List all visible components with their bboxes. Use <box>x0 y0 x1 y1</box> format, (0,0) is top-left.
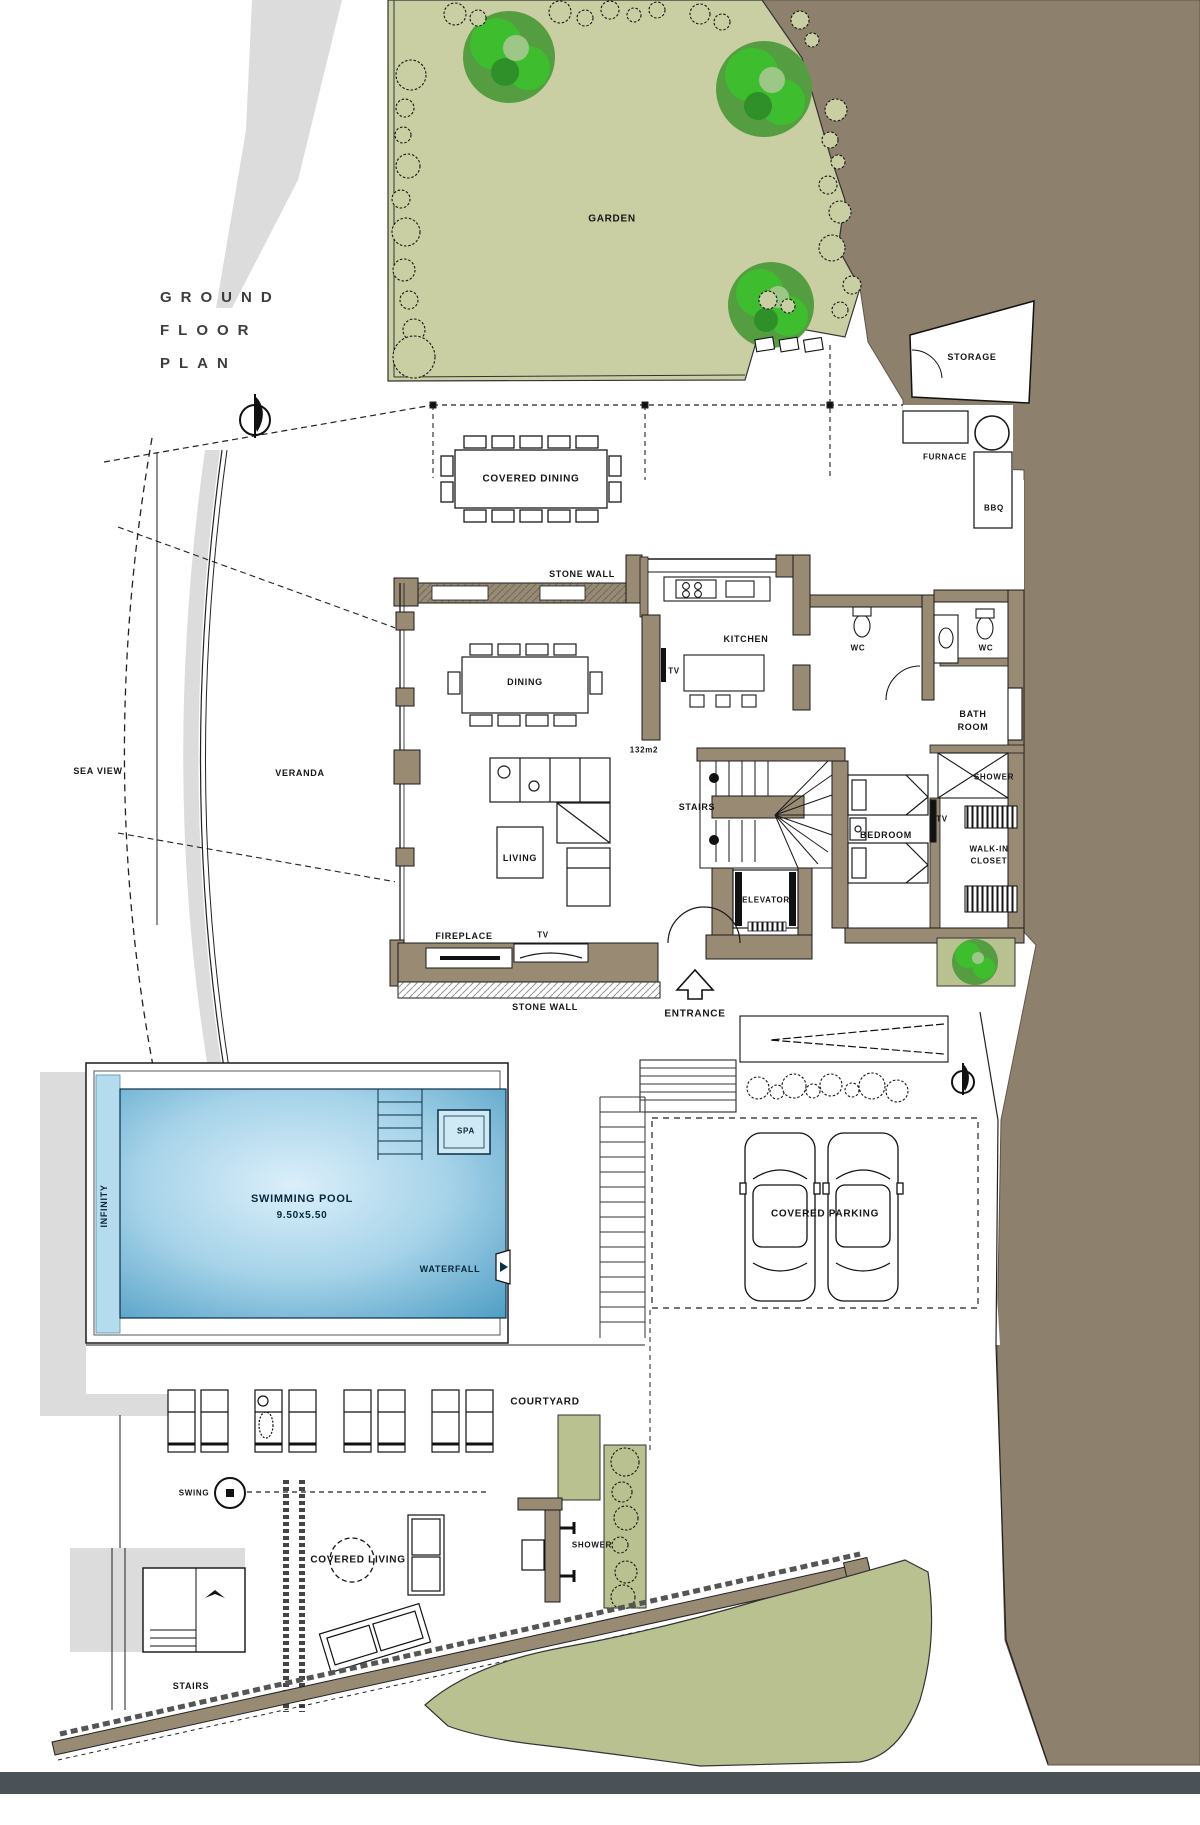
staircase <box>700 761 832 868</box>
label-waterfall: WATERFALL <box>420 1264 481 1274</box>
page-title-line1: GROUND <box>160 289 281 306</box>
waterfall-icon <box>496 1250 510 1284</box>
sun-loungers <box>168 1390 493 1452</box>
label-infinity: INFINITY <box>99 1184 109 1227</box>
label-living: LIVING <box>503 853 537 863</box>
label-shower-bath: SHOWER <box>974 773 1014 782</box>
label-covered-living: COVERED LIVING <box>310 1555 405 1566</box>
label-covered-dining: COVERED DINING <box>482 474 579 485</box>
label-furnace: FURNACE <box>923 453 967 462</box>
label-shower-outdoor: SHOWER <box>572 1541 612 1550</box>
label-bedroom: BEDROOM <box>860 830 912 840</box>
label-bathroom: BATH ROOM <box>958 708 989 734</box>
label-tv-living: TV <box>537 931 549 940</box>
label-kitchen: KITCHEN <box>724 634 769 644</box>
swing <box>215 1478 488 1508</box>
label-garden: GARDEN <box>588 214 636 225</box>
road <box>0 1772 1200 1794</box>
north-arrow-icon <box>240 394 270 438</box>
label-elevator: ELEVATOR <box>742 896 790 905</box>
label-fireplace: FIREPLACE <box>435 931 492 941</box>
label-bbq: BBQ <box>984 504 1004 513</box>
page-title-line3: PLAN <box>160 355 237 372</box>
label-bathroom-line2: ROOM <box>958 722 989 732</box>
entrance-arrow-icon <box>677 970 713 999</box>
floor-plan-drawing <box>0 0 1200 1825</box>
label-stone-wall-bottom: STONE WALL <box>512 1002 578 1012</box>
label-pool-size: 9.50x5.50 <box>277 1210 328 1221</box>
label-entrance: ENTRANCE <box>664 1009 725 1020</box>
label-wc-right: WC <box>979 644 994 653</box>
outdoor-shower <box>518 1415 646 1609</box>
label-courtyard: COURTYARD <box>510 1397 579 1408</box>
label-spa: SPA <box>457 1127 475 1136</box>
label-stairs-outdoor: STAIRS <box>173 1681 210 1691</box>
label-covered-parking: COVERED PARKING <box>771 1209 879 1220</box>
tree-icon <box>952 939 998 985</box>
label-walk-in-line1: WALK-IN <box>969 844 1008 853</box>
label-swimming-pool-name: SWIMMING POOL <box>251 1193 353 1205</box>
page-title-line2: FLOOR <box>160 322 258 339</box>
label-walk-in-line2: CLOSET <box>971 856 1008 865</box>
label-veranda: VERANDA <box>275 768 324 778</box>
label-bathroom-line1: BATH <box>959 709 986 719</box>
label-storage: STORAGE <box>947 352 996 362</box>
outdoor-stairs <box>143 1568 245 1652</box>
label-tv-kitchen: TV <box>668 667 680 676</box>
label-walk-in-closet: WALK-IN CLOSET <box>969 843 1008 866</box>
label-swimming-pool: SWIMMING POOL 9.50x5.50 <box>251 1192 353 1224</box>
shower-head-icon <box>560 1570 574 1582</box>
tree-icon <box>716 41 812 137</box>
label-stone-wall-top: STONE WALL <box>549 569 615 579</box>
planter <box>937 938 1015 986</box>
label-sea-view: SEA VIEW <box>73 766 122 776</box>
label-swing: SWING <box>179 1489 210 1498</box>
floor-plan-canvas: GROUND FLOOR PLAN GARDEN STORAGE FURNACE… <box>0 0 1200 1825</box>
label-tv-bedroom: TV <box>936 815 948 824</box>
label-wc-left: WC <box>851 644 866 653</box>
label-dining: DINING <box>507 677 543 687</box>
label-floor-area: 132m2 <box>630 746 658 755</box>
shower-head-icon <box>560 1522 574 1534</box>
label-stairs: STAIRS <box>679 802 716 812</box>
lawn-area <box>425 1560 932 1766</box>
